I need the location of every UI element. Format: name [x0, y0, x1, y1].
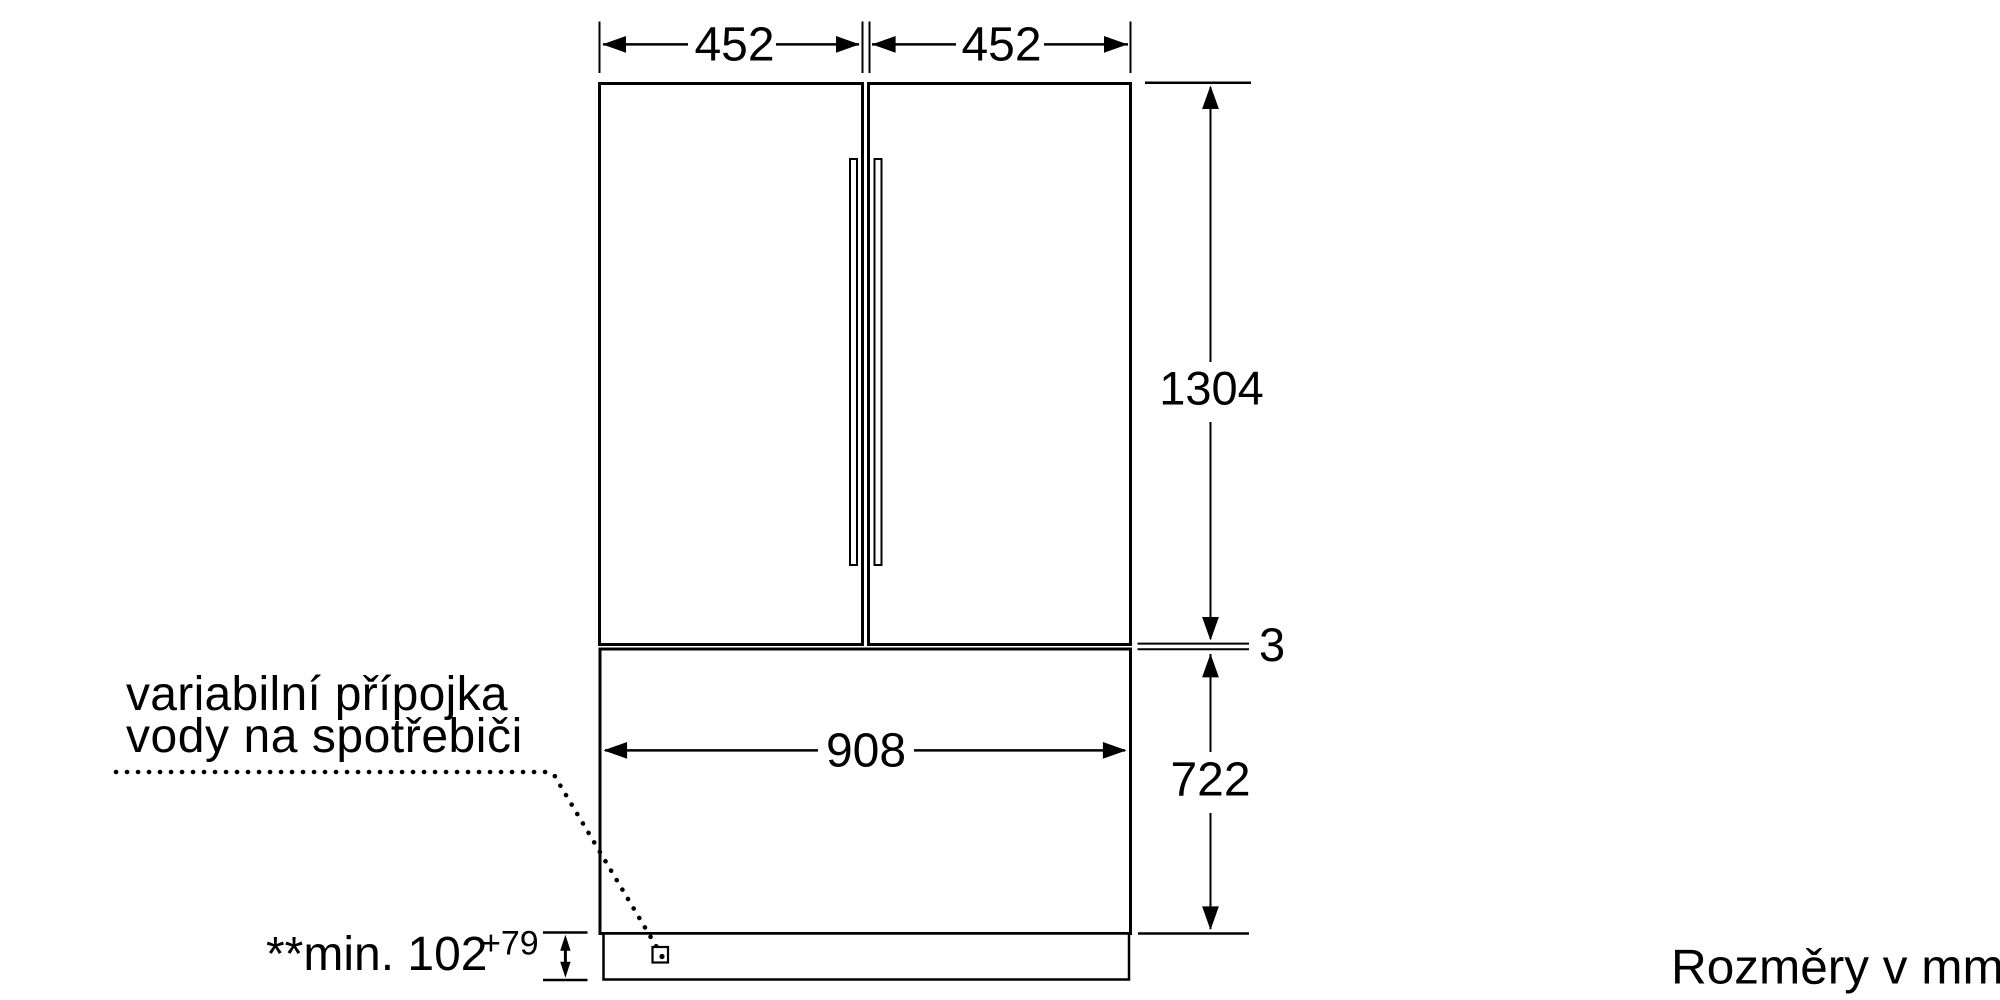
svg-text:452: 452: [694, 19, 774, 72]
svg-text:1304: 1304: [1159, 362, 1264, 415]
svg-text:+79: +79: [481, 925, 539, 963]
svg-text:Rozměry v mm: Rozměry v mm: [1671, 940, 2000, 995]
svg-text:908: 908: [826, 725, 906, 778]
svg-text:**min. 102: **min. 102: [266, 928, 487, 981]
svg-text:452: 452: [961, 19, 1041, 72]
svg-text:3: 3: [1259, 618, 1285, 671]
svg-text:vody na spotřebiči: vody na spotřebiči: [126, 710, 523, 763]
svg-text:722: 722: [1170, 754, 1250, 807]
